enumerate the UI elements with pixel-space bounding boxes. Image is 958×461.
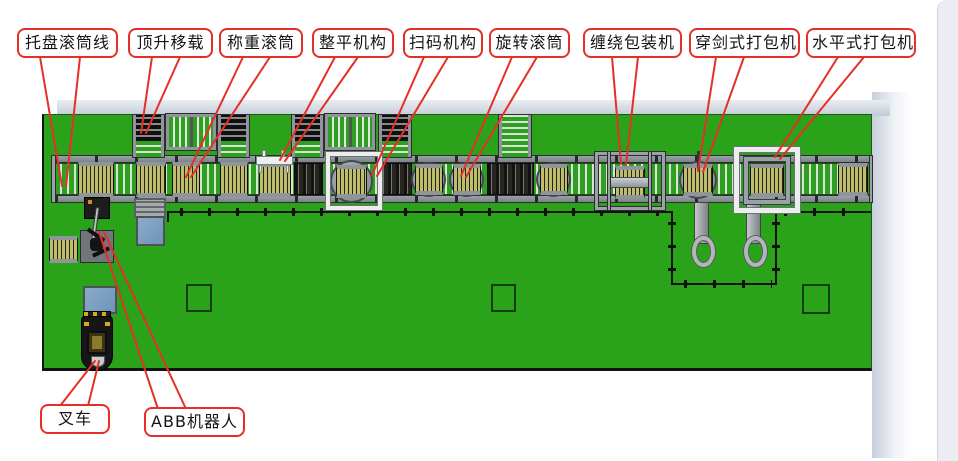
callout-weighing-roller: 称重滚筒 <box>219 28 303 58</box>
callout-leveling-mechanism: 整平机构 <box>312 28 394 58</box>
callout-lift-transfer: 顶升移载 <box>128 28 213 58</box>
callout-wrapping-machine: 缠绕包装机 <box>583 28 682 58</box>
layout-canvas: 托盘滚筒线 顶升移载 称重滚筒 整平机构 扫码机构 旋转滚筒 缠绕包装机 穿剑式… <box>0 0 958 461</box>
callout-abb-robot: ABB机器人 <box>144 407 245 437</box>
callout-leader-lines <box>0 0 958 461</box>
callout-forklift: 叉车 <box>40 404 110 434</box>
callout-pallet-roller-line: 托盘滚筒线 <box>17 28 118 58</box>
callout-rotary-roller: 旋转滚筒 <box>489 28 570 58</box>
callout-sword-strapper: 穿剑式打包机 <box>689 28 800 58</box>
callout-horizontal-strapper: 水平式打包机 <box>806 28 916 58</box>
callout-scanner-mechanism: 扫码机构 <box>403 28 483 58</box>
